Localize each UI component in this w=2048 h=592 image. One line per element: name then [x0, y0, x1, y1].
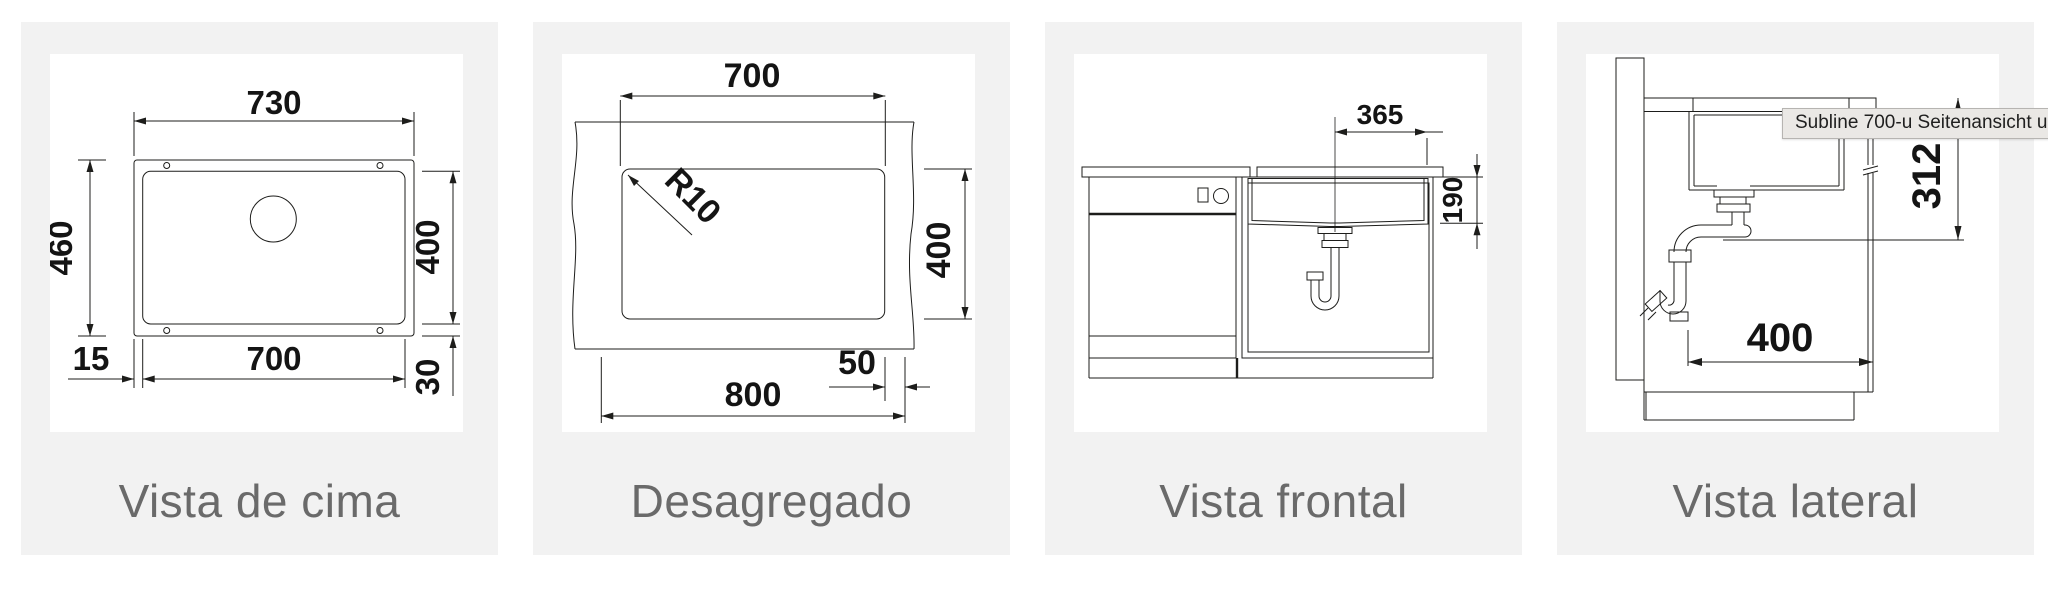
product-drawings-strip: 730 460 400 [0, 0, 2048, 592]
drawing-front-view: 365 190 [1074, 54, 1487, 432]
dim-15: 15 [68, 339, 134, 388]
control-knob [1214, 189, 1229, 204]
dim-190: 190 [1437, 154, 1483, 249]
dim-400: 400 [409, 171, 460, 324]
countertop [1082, 167, 1443, 177]
dim-700: 700 [620, 57, 885, 166]
sink-outline [134, 160, 414, 336]
panel-label-front-view: Vista frontal [1045, 474, 1522, 528]
svg-text:365: 365 [1357, 99, 1404, 130]
cutout-svg: R10 700 400 [562, 54, 975, 432]
drawing-cutout: R10 700 400 [562, 54, 975, 432]
svg-text:400: 400 [920, 222, 958, 279]
siphon [1640, 190, 1754, 321]
svg-text:700: 700 [246, 340, 301, 377]
svg-text:15: 15 [73, 340, 110, 377]
siphon [1307, 228, 1352, 311]
plinth [1089, 358, 1433, 378]
svg-text:800: 800 [725, 376, 782, 414]
hover-tooltip: Subline 700-u Seitenansicht unte [1782, 108, 2048, 139]
worktop-outline [572, 122, 914, 349]
thumbnail-cutout[interactable]: R10 700 400 [533, 22, 1010, 555]
wall [1616, 58, 1644, 380]
dim-400: 400 [1688, 316, 1873, 366]
svg-text:312: 312 [1905, 143, 1949, 210]
dim-50: 50 [829, 344, 930, 401]
svg-text:400: 400 [409, 219, 446, 274]
dim-700: 700 [143, 339, 405, 388]
dim-730: 730 [134, 84, 414, 156]
dim-400: 400 [920, 169, 972, 319]
thumbnail-top-view[interactable]: 730 460 400 [21, 22, 498, 555]
dishwasher-cabinet [1089, 177, 1236, 358]
basin [1248, 178, 1428, 227]
svg-text:700: 700 [724, 57, 781, 95]
dim-radius: R10 [628, 161, 728, 235]
thumbnail-side-view[interactable]: 312 400 Vista lateral [1557, 22, 2034, 555]
dim-460: 460 [50, 160, 106, 336]
drain-hole [250, 196, 296, 242]
svg-text:730: 730 [246, 84, 301, 121]
panel-label-cutout: Desagregado [533, 474, 1010, 528]
svg-text:190: 190 [1437, 177, 1468, 224]
top-view-svg: 730 460 400 [50, 54, 463, 432]
svg-text:400: 400 [1747, 316, 1814, 360]
thumbnail-front-view[interactable]: 365 190 Vista frontal [1045, 22, 1522, 555]
control-square [1198, 188, 1208, 202]
panel-label-top-view: Vista de cima [21, 474, 498, 528]
drawing-top-view: 730 460 400 [50, 54, 463, 432]
dim-30: 30 [409, 336, 460, 396]
svg-text:30: 30 [409, 359, 446, 396]
sink-cabinet [1242, 177, 1433, 358]
svg-text:R10: R10 [657, 161, 728, 232]
svg-text:50: 50 [838, 344, 876, 382]
dim-365: 365 [1335, 99, 1443, 165]
front-view-svg: 365 190 [1074, 54, 1487, 432]
svg-text:460: 460 [50, 220, 79, 275]
panel-label-side-view: Vista lateral [1557, 474, 2034, 528]
